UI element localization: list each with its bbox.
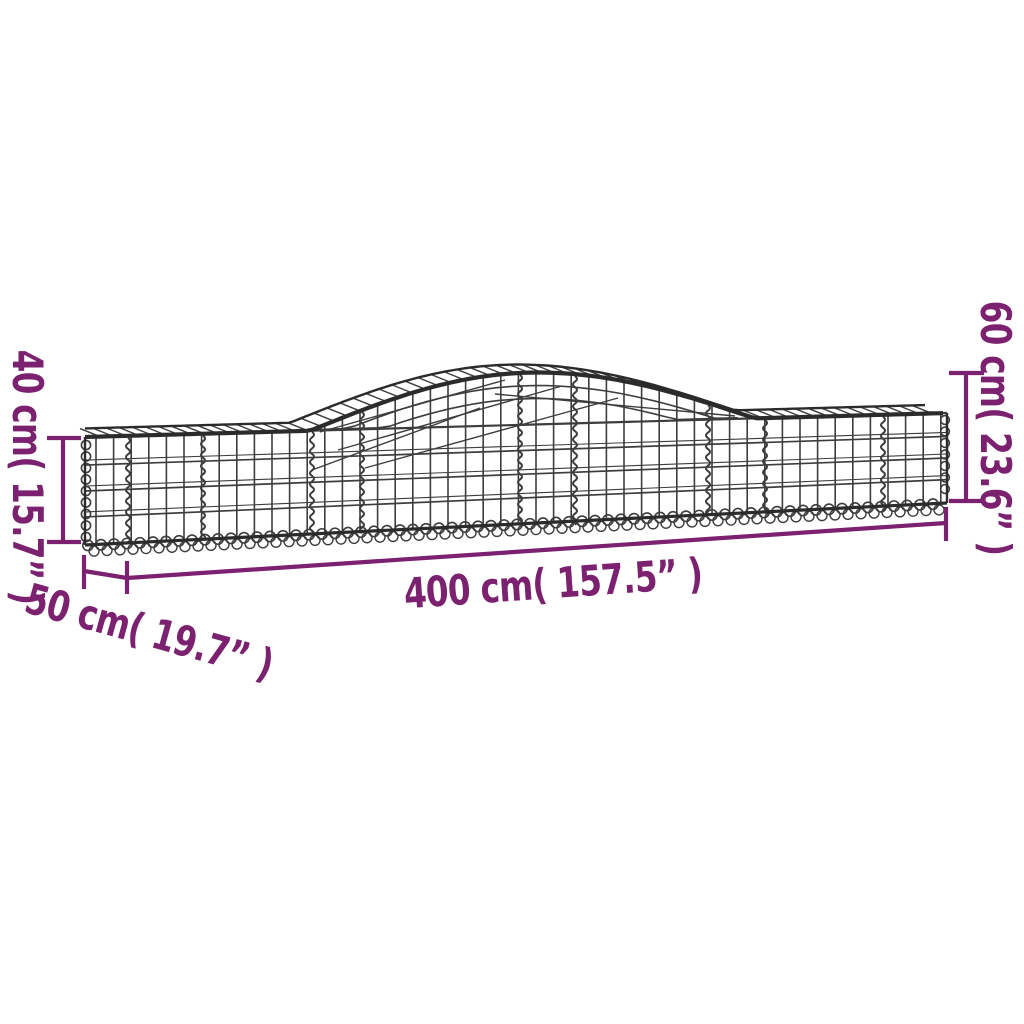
- gabion-basket-illustration: [0, 0, 1024, 1024]
- back-height-dimension-label: 60 cm( 23.6” ): [969, 249, 1021, 608]
- product-dimension-diagram: 400 cm( 157.5” ) 50 cm( 19.7” ) 40 cm( 1…: [0, 0, 1024, 1024]
- front-height-dimension-label: 40 cm( 15.7” ): [1, 298, 53, 657]
